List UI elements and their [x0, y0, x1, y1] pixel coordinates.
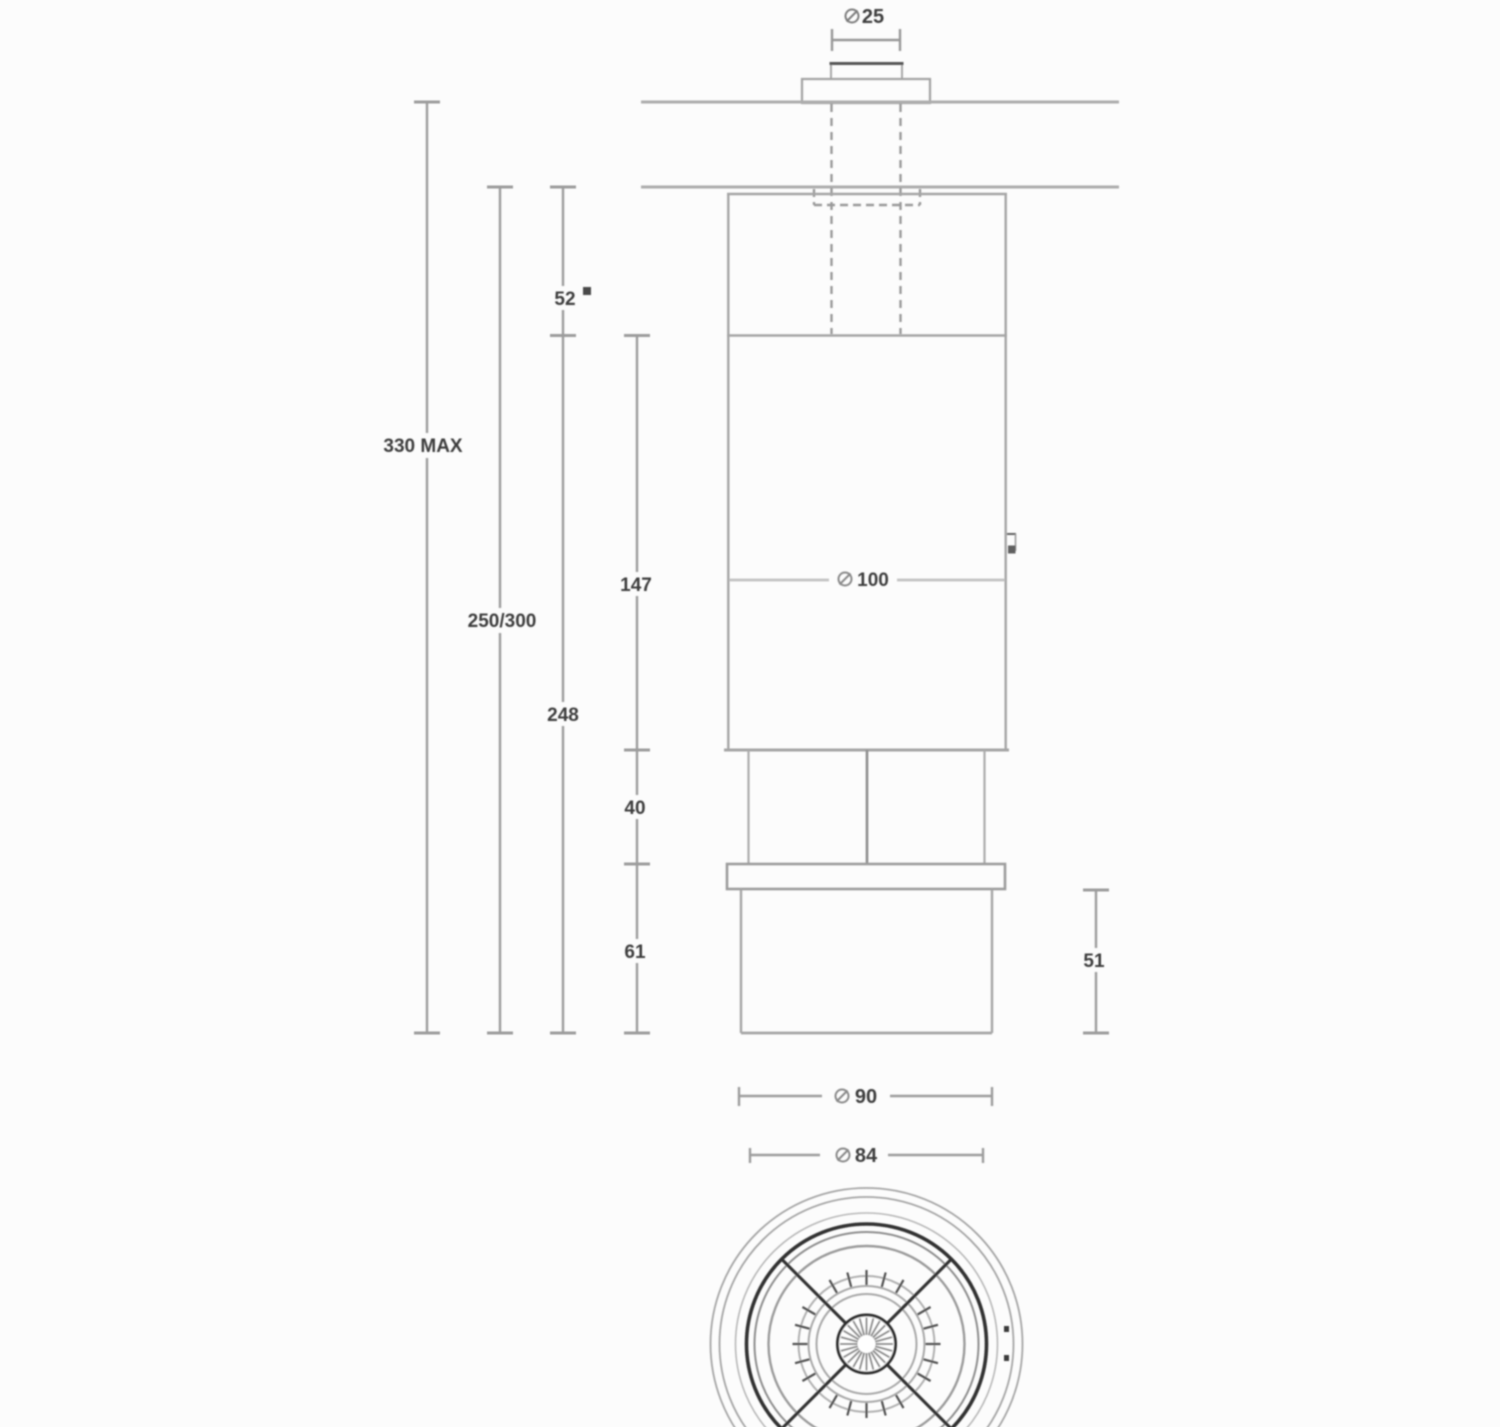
svg-text:147: 147: [620, 575, 652, 596]
svg-text:52: 52: [554, 289, 575, 310]
svg-text:40: 40: [624, 798, 645, 819]
svg-text:51: 51: [1083, 951, 1105, 972]
svg-text:90: 90: [855, 1086, 877, 1108]
svg-text:250/300: 250/300: [468, 611, 537, 632]
svg-text:84: 84: [855, 1145, 878, 1167]
svg-text:25: 25: [862, 6, 884, 28]
svg-text:330 MAX: 330 MAX: [383, 436, 463, 457]
svg-text:100: 100: [857, 570, 889, 591]
svg-text:248: 248: [547, 705, 579, 726]
svg-text:61: 61: [624, 942, 646, 963]
